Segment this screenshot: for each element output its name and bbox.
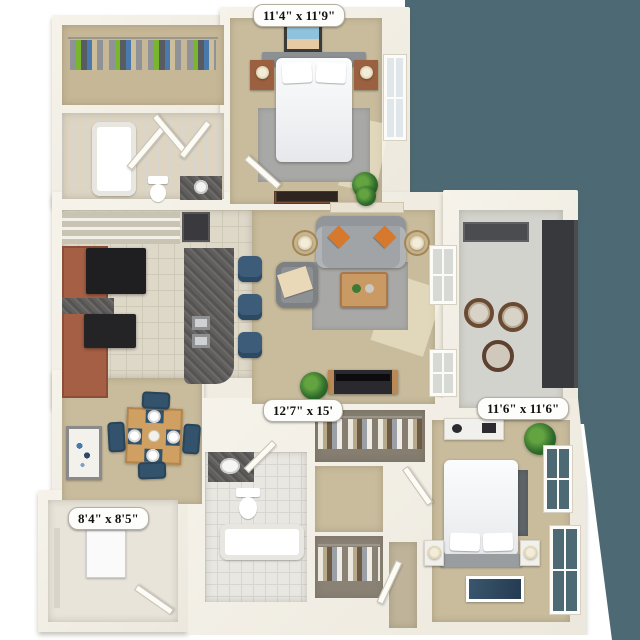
table-lamp (256, 66, 269, 79)
label-utility-room-dimensions: 8'4" x 8'5" (68, 507, 149, 530)
toilet-1-bowl (150, 184, 166, 202)
dining-chair (107, 422, 126, 453)
balcony-chair (498, 302, 528, 332)
pantry-shelves (62, 212, 180, 244)
sofa (316, 216, 406, 268)
dining-chair (138, 462, 167, 480)
console-table (276, 191, 338, 202)
bedroom-2-window (550, 526, 580, 614)
washer-dryer (86, 528, 126, 578)
toilet-2 (236, 488, 260, 497)
bedroom-2-window (544, 446, 572, 512)
table-decor (352, 284, 361, 293)
pillow (281, 62, 312, 84)
balcony-door (430, 246, 456, 304)
table-lamp (428, 546, 441, 559)
pillow (315, 62, 346, 84)
floor-closet-c (389, 542, 417, 628)
label-living-room-dimensions: 12'7" x 15' (263, 399, 343, 422)
tv (336, 374, 390, 381)
balcony-storage (463, 222, 529, 242)
wall-art-dining (66, 426, 102, 480)
balcony-chair (464, 298, 494, 328)
table-lamp (298, 236, 312, 250)
coffee-table (340, 272, 388, 308)
toilet-1 (148, 176, 168, 184)
balcony-table (482, 340, 514, 372)
bar-stool (238, 332, 262, 358)
dining-chair (182, 423, 201, 454)
balcony-railing (542, 220, 578, 388)
label-bedroom-2-dimensions: 11'6" x 11'6" (477, 397, 569, 420)
sink-1 (194, 180, 208, 194)
refrigerator (86, 248, 146, 294)
pillow (483, 532, 514, 551)
dresser-decor (482, 423, 496, 433)
island-sink (192, 316, 210, 330)
bar-stool (238, 294, 262, 320)
table-lamp (410, 236, 424, 250)
floor-plan: 11'4" x 11'9" 12'7" x 15' 11'6" x 11'6" … (0, 0, 640, 640)
centerpiece (149, 431, 159, 441)
bar-stool (238, 256, 262, 282)
hanging-clothes (318, 419, 422, 449)
closet-rod (318, 544, 380, 546)
sink-2 (220, 458, 240, 474)
pillow (450, 532, 481, 551)
headboard-bedroom-2 (440, 554, 522, 567)
table-lamp (360, 66, 373, 79)
potted-plant (300, 372, 328, 400)
utility-cabinet (54, 528, 60, 608)
hanging-clothes (70, 40, 216, 70)
balcony-window (430, 350, 456, 396)
hanging-clothes (318, 547, 380, 581)
bathtub-1 (92, 122, 136, 196)
label-bedroom-1-dimensions: 11'4" x 11'9" (253, 4, 345, 27)
dresser-decor (452, 424, 462, 433)
potted-plant (356, 186, 376, 206)
dining-table (125, 407, 183, 465)
wall-art-bedroom-1 (284, 24, 322, 52)
kitchen-counter (62, 298, 114, 314)
table-decor (365, 284, 374, 293)
bedroom-1-window (384, 55, 406, 140)
toilet-2-bowl (239, 497, 257, 519)
stove (84, 314, 136, 348)
water-heater (182, 212, 210, 242)
island-sink (192, 334, 210, 348)
floor-hallway (315, 466, 383, 532)
dining-chair (142, 391, 171, 409)
closet-rod (68, 37, 218, 39)
floor-art-bedroom-2 (466, 576, 524, 602)
table-lamp (524, 546, 537, 559)
bathtub-2 (220, 524, 304, 560)
